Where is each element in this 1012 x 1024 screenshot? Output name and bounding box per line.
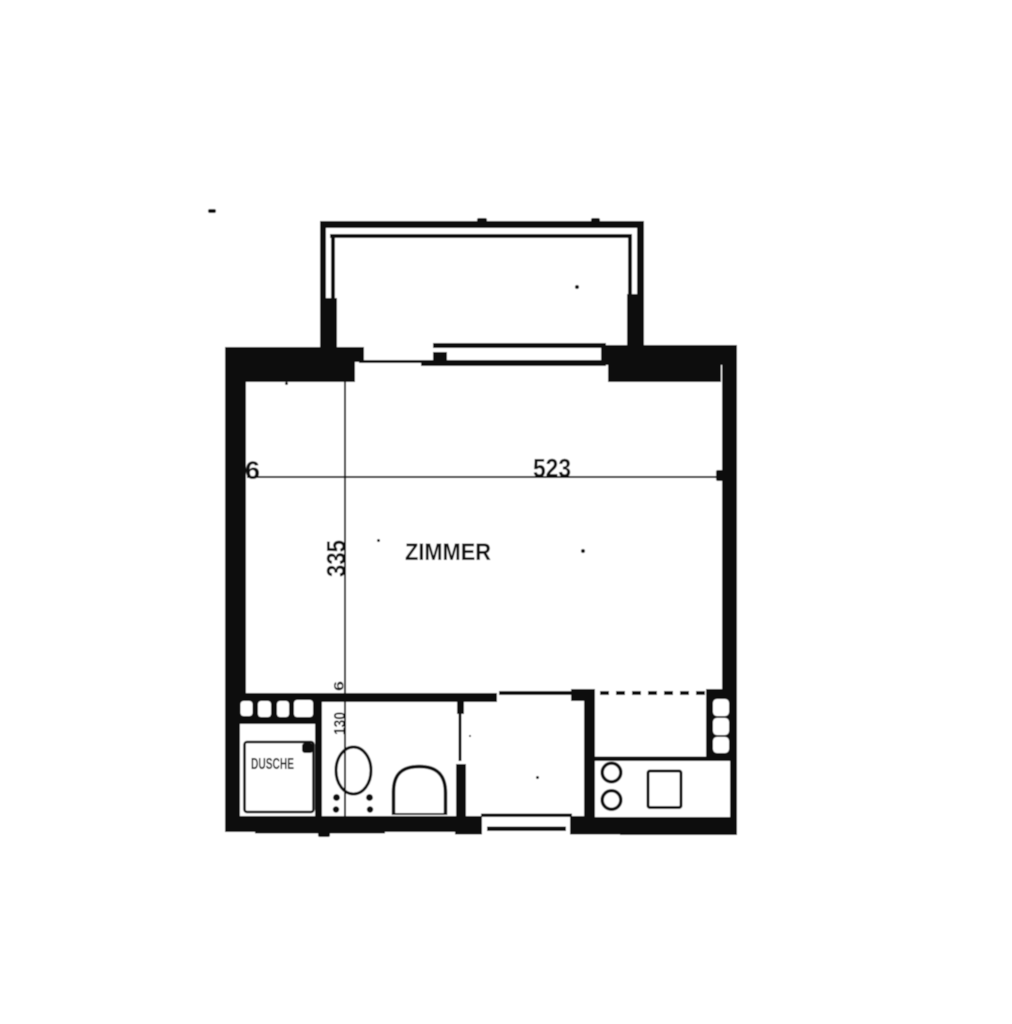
svg-text:6: 6 (245, 457, 260, 485)
svg-text:DUSCHE: DUSCHE (251, 756, 294, 773)
svg-text:335: 335 (321, 540, 351, 577)
svg-text:ZIMMER: ZIMMER (405, 539, 491, 566)
svg-text:130: 130 (332, 712, 349, 735)
svg-text:523: 523 (533, 453, 571, 483)
svg-text:6: 6 (331, 681, 347, 691)
